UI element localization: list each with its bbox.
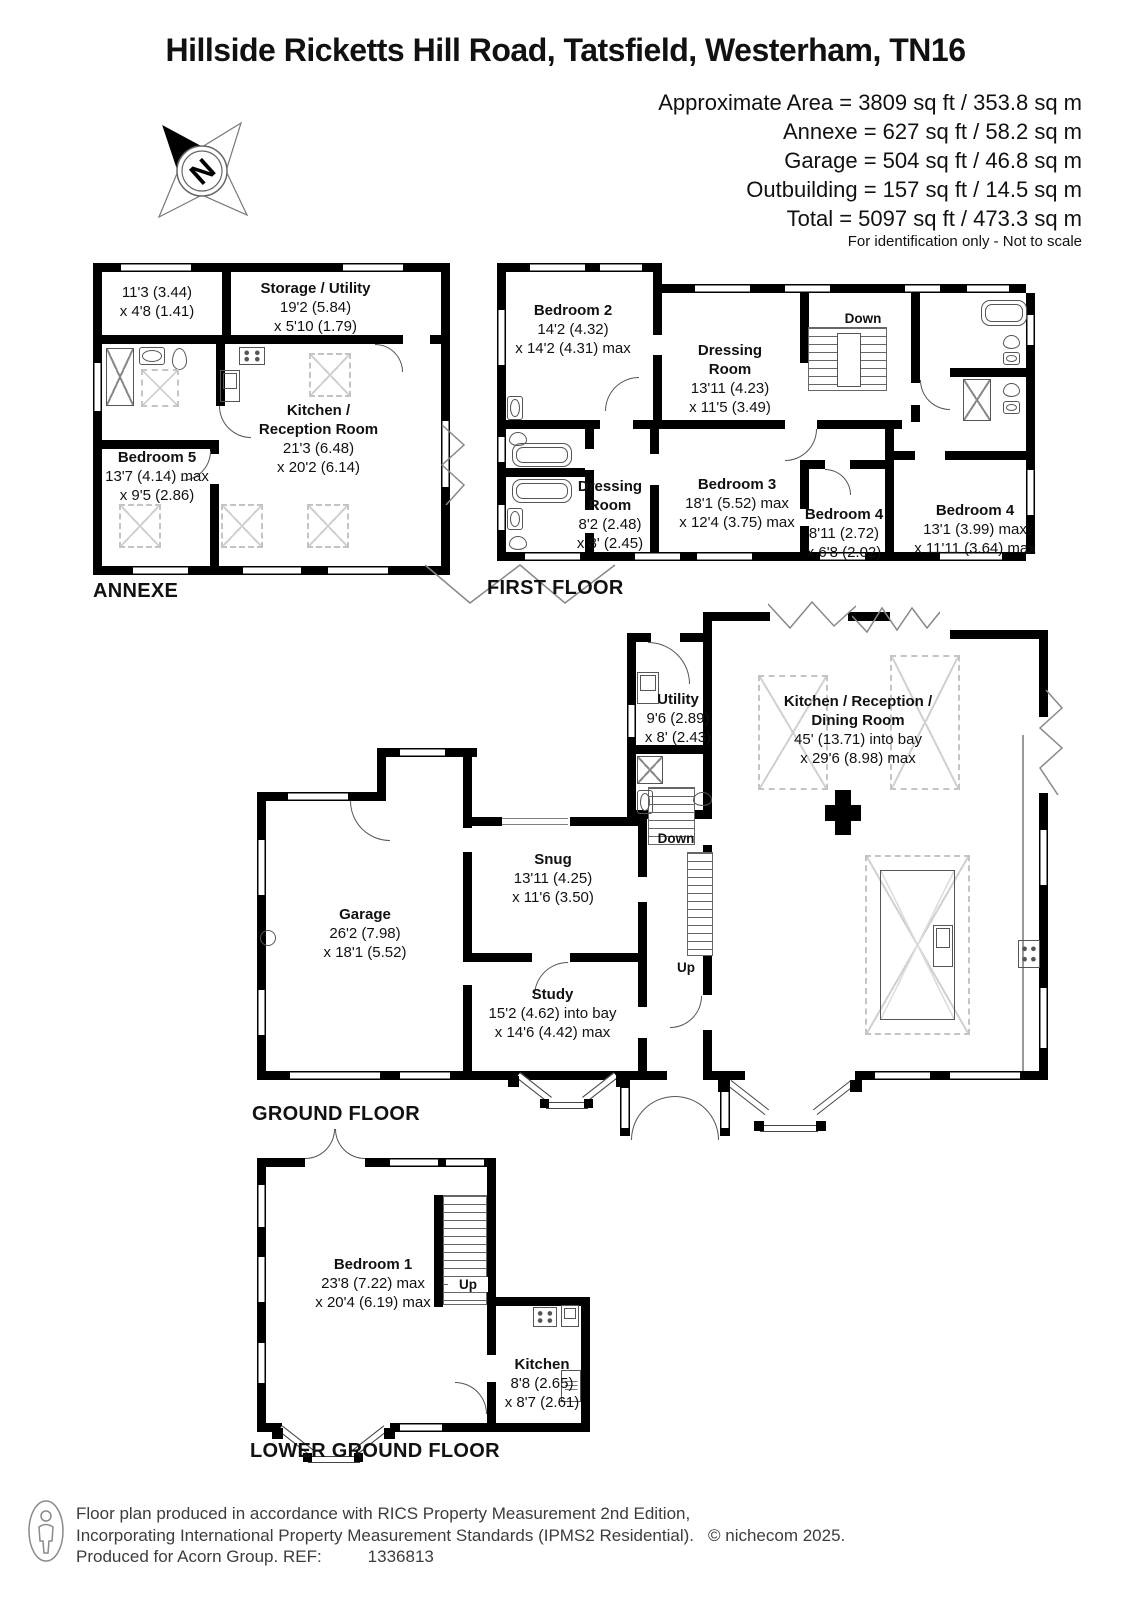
wall <box>487 1382 496 1432</box>
door-arc <box>648 642 690 684</box>
wall <box>653 293 662 335</box>
window <box>290 1072 380 1079</box>
wall <box>487 1306 496 1355</box>
wall-joint <box>718 1080 730 1092</box>
window <box>133 567 188 574</box>
stairs-up-label: Up <box>668 960 704 975</box>
window <box>400 1072 450 1079</box>
window <box>635 553 680 560</box>
room-size: 8'8 (2.65) x 8'7 (2.61) <box>505 1375 580 1411</box>
wall <box>463 748 472 828</box>
disclaimer-note: For identification only - Not to scale <box>848 233 1082 250</box>
lower-ground-floor-plan: Up Bedroom 1 23'8 (7.22) max x 20'4 (6.1… <box>250 1125 595 1475</box>
room-name: Dressing Room <box>571 477 649 515</box>
wall <box>800 469 809 509</box>
hob-icon <box>533 1307 557 1327</box>
room-size: 18'1 (5.52) max x 12'4 (3.75) max <box>679 495 794 531</box>
wall <box>441 263 450 575</box>
toilet-icon <box>693 792 712 806</box>
room-size: 19'2 (5.84) x 5'10 (1.79) <box>274 299 357 335</box>
window <box>94 363 101 411</box>
ceiling-light-icon <box>307 504 349 548</box>
wall <box>950 368 1026 377</box>
room-label-bedroom4a: Bedroom 4 8'11 (2.72) x 6'8 (2.02) <box>797 505 891 562</box>
area-line-total: Total = 5097 sq ft / 473.3 sq m <box>658 204 1082 233</box>
room-name: Utility <box>643 690 713 709</box>
sink-icon <box>637 790 653 814</box>
door-arc <box>305 1129 335 1159</box>
wall-break-line <box>852 602 940 636</box>
window <box>530 264 585 271</box>
door-arc <box>920 380 950 410</box>
door-arc <box>350 801 390 841</box>
room-label-bedroom3: Bedroom 3 18'1 (5.52) max x 12'4 (3.75) … <box>675 475 799 532</box>
wall <box>638 902 647 1007</box>
kitchen-sink-icon <box>220 370 240 402</box>
room-label-storage-utility: Storage / Utility 19'2 (5.84) x 5'10 (1.… <box>223 279 408 336</box>
window <box>400 1424 442 1431</box>
door-arc <box>605 377 639 411</box>
window <box>258 990 265 1035</box>
room-name: Bedroom 2 <box>503 301 643 320</box>
window <box>258 840 265 895</box>
polyline-element <box>768 602 856 628</box>
window <box>695 285 750 292</box>
door-arc <box>455 1382 487 1414</box>
room-name: Snug <box>488 850 618 869</box>
ground-floor-plan: Down Up <box>250 600 1065 1180</box>
area-line-outbuilding: Outbuilding = 157 sq ft / 14.5 sq m <box>658 175 1082 204</box>
room-size: 21'3 (6.48) x 20'2 (6.14) <box>277 440 360 476</box>
shower-icon <box>637 756 663 784</box>
footer-line1: Floor plan produced in accordance with R… <box>76 1503 845 1525</box>
wall-joint <box>754 1121 764 1131</box>
wall-joint <box>584 1099 593 1108</box>
window <box>621 1088 629 1128</box>
wall-joint <box>816 1121 826 1131</box>
wall <box>93 335 403 344</box>
area-line-annexe: Annexe = 627 sq ft / 58.2 sq m <box>658 117 1082 146</box>
room-name: Bedroom 3 <box>675 475 799 494</box>
window <box>1040 988 1047 1048</box>
wall <box>463 852 472 962</box>
bay-window <box>546 1102 588 1109</box>
stairs-down-label: Down <box>646 831 706 846</box>
wall <box>430 335 450 344</box>
window <box>258 1185 265 1227</box>
window <box>446 1159 484 1166</box>
wall-break-line <box>1038 690 1064 795</box>
shower-icon <box>963 379 991 421</box>
wall <box>650 429 659 454</box>
sink-icon <box>1003 401 1020 414</box>
window <box>498 505 505 530</box>
footer-line3: Produced for Acorn Group. REF: <box>76 1547 322 1566</box>
polyline-element <box>442 425 464 505</box>
room-name: Bedroom 4 <box>909 501 1041 520</box>
room-label-bedroom4b: Bedroom 4 13'1 (3.99) max x 11'11 (3.64)… <box>909 501 1041 558</box>
window <box>525 553 580 560</box>
wall <box>497 420 600 429</box>
wall <box>945 451 1026 460</box>
room-label-snug: Snug 13'11 (4.25) x 11'6 (3.50) <box>488 850 618 907</box>
wall <box>837 333 861 387</box>
wall-joint <box>508 1076 519 1087</box>
floor-label-ground: GROUND FLOOR <box>252 1103 420 1126</box>
room-label-dressing1: Dressing Room 13'11 (4.23) x 11'5 (3.49) <box>680 341 780 417</box>
window <box>600 264 642 271</box>
kitchen-sink-icon <box>933 925 953 967</box>
room-name: Garage <box>295 905 435 924</box>
person-icon <box>27 1499 65 1563</box>
wall <box>463 985 472 1080</box>
wall <box>680 633 712 642</box>
wall <box>730 1071 745 1080</box>
compass-icon: N <box>150 116 254 224</box>
toilet-icon <box>1003 335 1020 349</box>
wall-break-line <box>440 425 466 505</box>
stairs-down-label: Down <box>828 311 898 326</box>
room-name: Storage / Utility <box>223 279 408 298</box>
room-label-annexe-hall: 11'3 (3.44) x 4'8 (1.41) <box>99 283 215 321</box>
room-size: 15'2 (4.62) into bay x 14'6 (4.42) max <box>489 1005 617 1041</box>
window <box>258 1257 265 1302</box>
polyline-element <box>852 608 940 632</box>
wall <box>653 355 662 420</box>
circle-element <box>41 1511 51 1521</box>
room-name: Dressing Room <box>680 341 780 379</box>
bathtub-icon <box>512 443 572 467</box>
ceiling-light-icon <box>119 504 161 548</box>
sink-icon <box>507 396 523 420</box>
footer-line3-row: Produced for Acorn Group. REF:1336813 <box>76 1546 845 1568</box>
wall <box>911 405 920 422</box>
door-arc <box>335 1129 365 1159</box>
garage-door-handle-icon <box>260 930 276 946</box>
room-size: 9'6 (2.89) x 8' (2.43) <box>645 710 711 746</box>
toilet-icon <box>509 536 527 550</box>
room-size: 13'1 (3.99) max x 11'11 (3.64) max <box>914 521 1036 557</box>
door-arc <box>825 469 851 495</box>
kitchen-sink-icon <box>561 1305 579 1327</box>
room-label-bedroom5: Bedroom 5 13'7 (4.14) max x 9'5 (2.86) <box>99 448 215 505</box>
window <box>697 553 752 560</box>
window <box>1027 315 1034 345</box>
wall <box>950 630 1048 639</box>
sink-icon <box>507 508 523 530</box>
window <box>950 1072 1020 1079</box>
area-line-total-approx: Approximate Area = 3809 sq ft / 353.8 sq… <box>658 88 1082 117</box>
window <box>258 1343 265 1383</box>
room-name: Bedroom 1 <box>288 1255 458 1274</box>
area-summary: Approximate Area = 3809 sq ft / 353.8 sq… <box>658 88 1082 233</box>
wall <box>712 612 770 621</box>
wall-joint <box>384 1428 395 1439</box>
area-line-garage: Garage = 504 sq ft / 46.8 sq m <box>658 146 1082 175</box>
room-name: Bedroom 4 <box>797 505 891 524</box>
room-name: Kitchen / Reception / Dining Room <box>768 692 948 730</box>
window <box>343 264 403 271</box>
window <box>785 285 830 292</box>
room-name: Bedroom 5 <box>99 448 215 467</box>
room-size: 13'7 (4.14) max x 9'5 (2.86) <box>105 468 209 504</box>
footer-line2-row: Incorporating International Property Mea… <box>76 1525 845 1547</box>
bay-window <box>813 1080 855 1115</box>
wall <box>633 420 785 429</box>
window <box>875 1072 930 1079</box>
window <box>628 705 635 737</box>
wall-joint <box>272 1428 283 1439</box>
window <box>721 1088 729 1128</box>
floor-label-lower-ground: LOWER GROUND FLOOR <box>250 1440 500 1463</box>
door-arc <box>675 1096 719 1140</box>
footer-ref-number: 1336813 <box>368 1547 434 1566</box>
chimney-breast <box>825 805 861 821</box>
bathtub-icon <box>981 300 1027 326</box>
path-element <box>39 1525 53 1554</box>
window <box>498 437 505 462</box>
room-size: 11'3 (3.44) x 4'8 (1.41) <box>120 284 195 320</box>
window <box>243 567 301 574</box>
ellipse-element <box>29 1501 63 1561</box>
footer-line2: Incorporating International Property Mea… <box>76 1526 694 1545</box>
page-title: Hillside Ricketts Hill Road, Tatsfield, … <box>0 32 1131 69</box>
room-size: 26'2 (7.98) x 18'1 (5.52) <box>324 925 407 961</box>
wall-joint <box>540 1099 549 1108</box>
ceiling-light-icon <box>141 369 179 407</box>
room-size: 14'2 (4.32) x 14'2 (4.31) max <box>515 321 630 357</box>
room-label-bedroom1: Bedroom 1 23'8 (7.22) max x 20'4 (6.19) … <box>288 1255 458 1312</box>
wall <box>703 1030 712 1080</box>
wall <box>487 1158 496 1306</box>
door-arc <box>631 1096 675 1140</box>
window <box>390 1159 438 1166</box>
room-size: 8'2 (2.48) x 8' (2.45) <box>577 516 643 552</box>
wall <box>585 429 594 449</box>
shower-icon <box>106 348 134 406</box>
wall <box>800 460 825 469</box>
window <box>328 567 388 574</box>
footer-disclaimer: Floor plan produced in accordance with R… <box>76 1503 845 1568</box>
wall <box>650 485 659 552</box>
room-name: Kitchen <box>496 1355 588 1374</box>
bay-window <box>760 1125 818 1132</box>
wall-joint <box>850 1080 862 1092</box>
room-label-lower-kitchen: Kitchen 8'8 (2.65) x 8'7 (2.61) <box>496 1355 588 1412</box>
room-size: 13'11 (4.23) x 11'5 (3.49) <box>689 380 771 416</box>
room-label-utility: Utility 9'6 (2.89) x 8' (2.43) <box>643 690 713 747</box>
wall <box>497 468 585 477</box>
toilet-icon <box>1003 383 1020 397</box>
door-arc <box>785 429 817 461</box>
room-label-kitchen-reception-dining: Kitchen / Reception / Dining Room 45' (1… <box>768 692 948 768</box>
window <box>400 749 445 756</box>
door-arc <box>375 344 403 372</box>
floor-label-first: FIRST FLOOR <box>487 577 624 600</box>
ceiling-light-icon <box>221 504 263 548</box>
wall <box>647 1071 667 1080</box>
door-arc <box>670 996 702 1028</box>
counter-line <box>1022 735 1024 1071</box>
room-label-garage: Garage 26'2 (7.98) x 18'1 (5.52) <box>295 905 435 962</box>
hob-icon <box>1018 940 1040 968</box>
wall-joint <box>616 1076 627 1087</box>
polyline-element <box>1040 690 1062 795</box>
floor-label-annexe: ANNEXE <box>93 580 178 603</box>
floorplan-page: Hillside Ricketts Hill Road, Tatsfield, … <box>0 0 1131 1600</box>
window <box>967 285 1009 292</box>
first-floor-plan: Down Bedroom 2 14'2 (4.32) x 14'2 (4.31)… <box>485 255 1041 570</box>
wall <box>627 745 636 820</box>
room-size: 45' (13.71) into bay x 29'6 (8.98) max <box>794 731 922 767</box>
room-size: 8'11 (2.72) x 6'8 (2.02) <box>807 525 882 561</box>
room-size: 13'11 (4.25) x 11'6 (3.50) <box>512 870 594 906</box>
sink-icon <box>1003 352 1020 365</box>
room-label-dressing2: Dressing Room 8'2 (2.48) x 8' (2.45) <box>571 477 649 553</box>
wall <box>817 420 902 429</box>
window <box>905 285 940 292</box>
stairs <box>687 852 713 956</box>
room-size: 23'8 (7.22) max x 20'4 (6.19) max <box>315 1275 430 1311</box>
window <box>121 264 191 271</box>
room-name: Study <box>475 985 630 1004</box>
sink-icon <box>139 347 165 365</box>
ceiling-light-icon <box>309 353 351 397</box>
wall <box>472 953 532 962</box>
wall <box>487 1423 590 1432</box>
room-label-bedroom2: Bedroom 2 14'2 (4.32) x 14'2 (4.31) max <box>503 301 643 358</box>
window <box>1040 830 1047 885</box>
window <box>288 793 348 800</box>
room-name: Kitchen / Reception Room <box>231 401 406 439</box>
annexe-plan: 11'3 (3.44) x 4'8 (1.41) Storage / Utili… <box>93 263 450 575</box>
footer-copyright: © nichecom 2025. <box>708 1526 845 1545</box>
bay-window <box>727 1080 769 1115</box>
room-label-study: Study 15'2 (4.62) into bay x 14'6 (4.42)… <box>475 985 630 1042</box>
bathtub-icon <box>512 479 572 503</box>
wall <box>638 817 647 877</box>
hob-icon <box>239 347 265 365</box>
window <box>502 818 568 825</box>
room-label-kitchen-reception: Kitchen / Reception Room 21'3 (6.48) x 2… <box>231 401 406 477</box>
wall <box>911 293 920 383</box>
toilet-icon <box>172 348 187 370</box>
wall-break-line <box>768 598 856 634</box>
wall <box>570 953 638 962</box>
wall <box>894 451 915 460</box>
wall <box>472 817 502 826</box>
